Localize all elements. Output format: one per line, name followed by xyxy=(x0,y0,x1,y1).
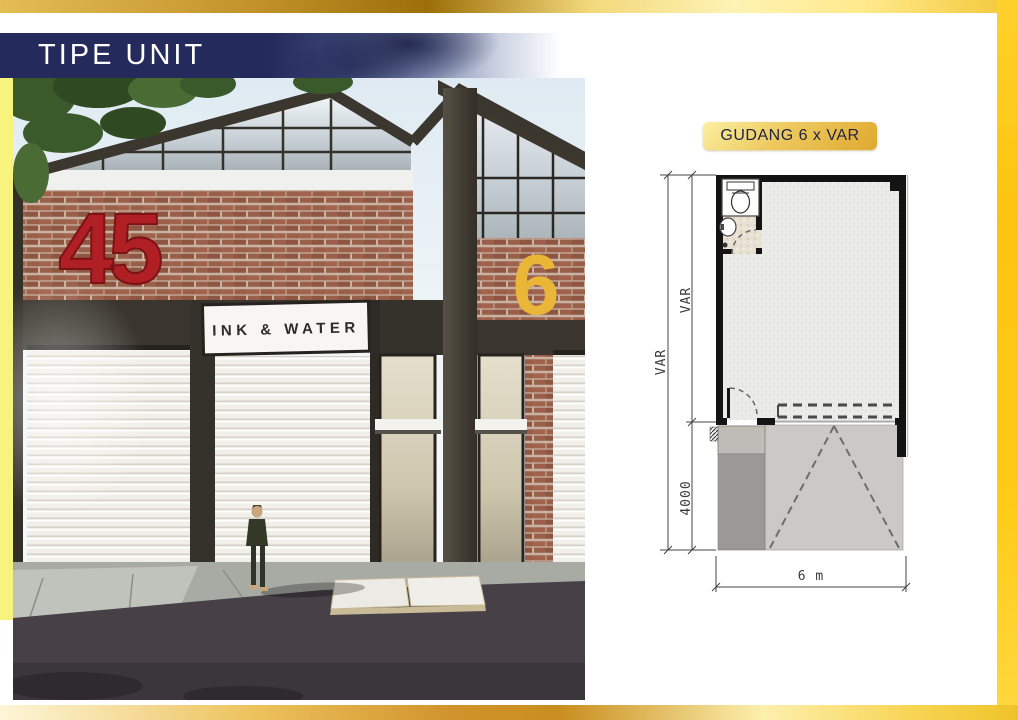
center-mast-column xyxy=(443,88,477,600)
side-planter xyxy=(718,454,765,550)
gold-frame-bottom xyxy=(0,705,1018,720)
floorplan-title-badge: GUDANG 6 x VAR xyxy=(703,122,877,150)
front-yard xyxy=(718,425,903,550)
ground xyxy=(13,562,585,700)
signboard: INK & WATER xyxy=(202,301,369,355)
canopy-left xyxy=(375,419,441,434)
driveway xyxy=(765,425,903,550)
header-banner: TIPE UNIT xyxy=(0,33,560,78)
canopy-right xyxy=(475,419,527,434)
gold-frame-right xyxy=(997,0,1018,720)
unit-number-6: 6 xyxy=(512,238,559,333)
concrete-pad xyxy=(718,426,765,454)
glass-entry-door-right xyxy=(479,355,523,598)
left-accent-strip xyxy=(0,78,13,620)
door-sill-hatch xyxy=(710,427,718,441)
exterior-render: 45 INK & WATER 6 xyxy=(13,78,585,700)
dim-depth-building: VAR xyxy=(679,287,694,313)
entry-steps xyxy=(330,576,486,615)
floorplan: VAR VAR 4000 6 m xyxy=(648,160,918,600)
dim-front-yard: 4000 xyxy=(679,480,694,515)
signboard-text: INK & WATER xyxy=(212,319,360,339)
floor-drain xyxy=(723,243,728,248)
dim-width: 6 m xyxy=(798,569,824,584)
dim-depth-total: VAR xyxy=(654,349,669,375)
gold-frame-top xyxy=(0,0,1018,13)
slide-tipe-unit: TIPE UNIT xyxy=(0,0,1018,720)
glass-entry-door-left xyxy=(380,355,435,598)
roller-door-middle xyxy=(215,356,370,566)
toilet-icon xyxy=(722,179,759,216)
page-title: TIPE UNIT xyxy=(38,33,205,78)
sink-icon xyxy=(720,218,736,236)
